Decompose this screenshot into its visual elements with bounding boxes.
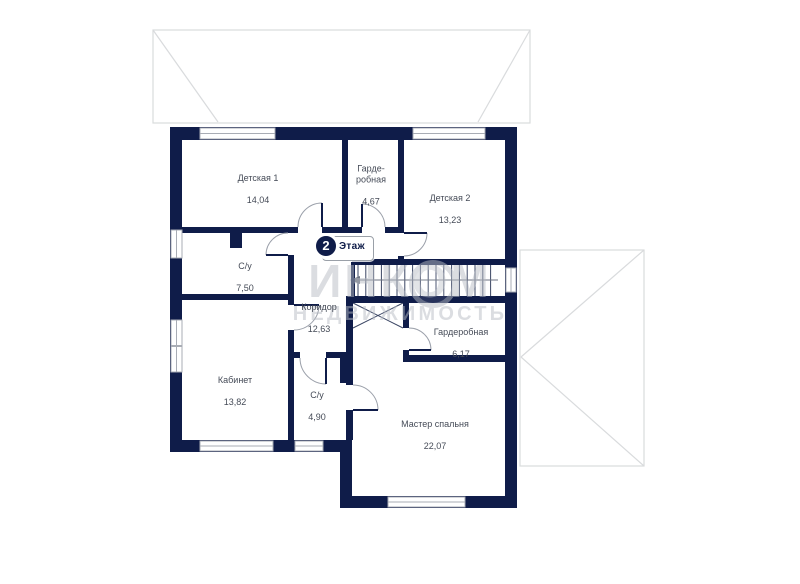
room-area: 22,07 (424, 441, 447, 451)
room-label-garderobnaya-top: Гарде- робная 4,67 (356, 153, 386, 208)
room-label-detskaya-2: Детская 2 13,23 (430, 182, 471, 226)
room-name: С/у (238, 261, 252, 271)
floor-plan-drawing (0, 0, 800, 584)
room-label-kabinet: Кабинет 13,82 (218, 364, 252, 408)
room-area: 4,67 (362, 197, 380, 207)
room-area: 13,23 (439, 215, 462, 225)
room-label-su-bottom: С/у 4,90 (308, 379, 326, 423)
room-area: 13,82 (224, 397, 247, 407)
room-label-su-top: С/у 7,50 (236, 250, 254, 294)
floor-number: 2 (313, 233, 339, 259)
room-label-detskaya-1: Детская 1 14,04 (238, 162, 279, 206)
room-name: Гарде- робная (356, 164, 386, 185)
room-label-master: Мастер спальня 22,07 (401, 408, 469, 452)
room-area: 7,50 (236, 283, 254, 293)
room-name: Коридор (301, 302, 337, 312)
room-name: Кабинет (218, 375, 252, 385)
room-area: 14,04 (247, 195, 270, 205)
room-name: С/у (310, 390, 324, 400)
room-area: 12,63 (308, 324, 331, 334)
floor-badge: 2 Этаж (322, 236, 374, 261)
room-name: Детская 1 (238, 173, 279, 183)
room-area: 6,17 (452, 349, 470, 359)
room-area: 4,90 (308, 412, 326, 422)
room-name: Детская 2 (430, 193, 471, 203)
room-name: Гардеробная (434, 327, 488, 337)
room-label-garderobnaya-master: Гардеробная 6,17 (434, 316, 488, 360)
floor-plan-image: ИНКОМ НЕДВИЖИМОСТЬ Детская 1 14,04 Гарде… (0, 0, 800, 584)
room-label-koridor: Коридор 12,63 (301, 291, 337, 335)
floor-label: Этаж (339, 241, 365, 252)
room-name: Мастер спальня (401, 419, 469, 429)
